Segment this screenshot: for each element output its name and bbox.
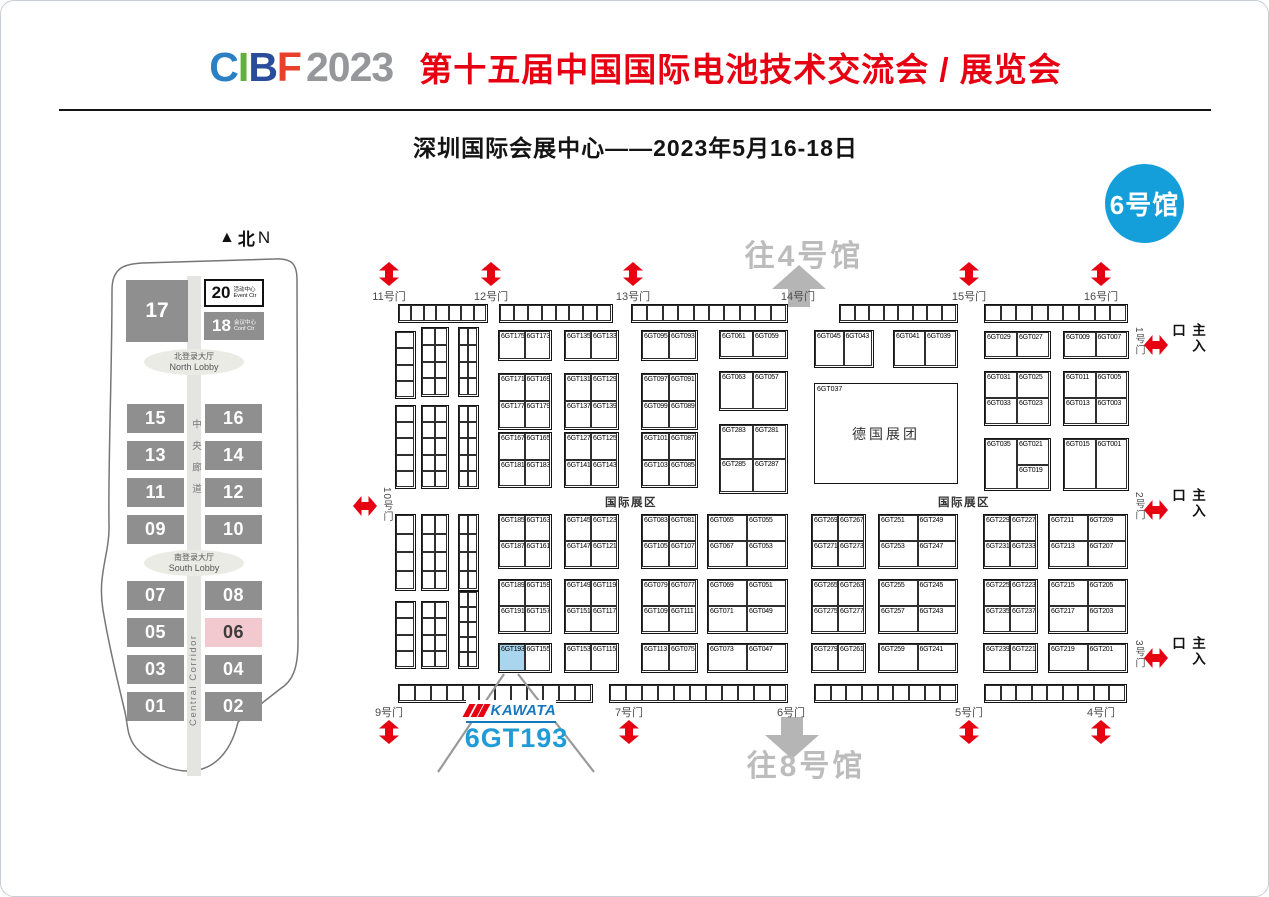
booth-6GT229: 6GT229 [984,515,1010,541]
booth-block: 6GT0356GT0216GT019 [984,438,1051,491]
small-booth-cell [422,471,435,487]
small-booth-cell [724,305,739,321]
booth-block: 6GT0156GT001 [1063,438,1129,491]
booth-block: 6GT0116GT0056GT0136GT003 [1063,371,1129,426]
small-booth-cell [396,348,414,364]
booth-block: 6GT2556GT2456GT2576GT243 [878,579,958,634]
small-booth-cell [435,471,448,487]
minimap-hall-01: 01 [127,692,184,721]
small-booth-cell [1095,305,1111,321]
booth-6GT135: 6GT135 [565,331,591,359]
booth-6GT205: 6GT205 [1088,580,1127,606]
booth-6GT011: 6GT011 [1064,372,1096,398]
small-booth-cell [422,515,435,534]
booth-6GT049: 6GT049 [747,606,786,632]
small-booth-cell [435,515,448,534]
small-booth-cell [1001,305,1017,321]
booth-6GT089: 6GT089 [669,401,696,428]
small-booth-cell [435,635,448,651]
door-label-4号门: 4号门 [1087,704,1115,720]
kawata-logo: KAWATA [466,700,556,723]
small-booth-cell [459,455,468,471]
booth-6GT269: 6GT269 [812,515,838,541]
north-label-cn: 北 [238,225,255,250]
minimap-event-center: 20 活动中心Event Ctr [204,279,264,307]
booth-6GT047: 6GT047 [747,644,786,671]
booth-6GT153: 6GT153 [565,644,591,671]
north-arrow-icon: ▲ [219,229,235,247]
minimap-hall-17: 17 [126,280,188,342]
north-lobby-en: North Lobby [169,362,218,372]
entrance-arrow-icon [1144,500,1168,520]
booth-6GT175: 6GT175 [499,331,525,359]
small-booth-cell [435,422,448,438]
booth-6GT187: 6GT187 [499,541,525,567]
booth-6GT105: 6GT105 [642,541,669,567]
door-arrow-icon [379,720,399,744]
booth-6GT027: 6GT027 [1017,332,1049,357]
small-booth-cell [396,471,414,487]
small-booth-column [458,327,479,397]
small-booth-cell [424,305,436,321]
to-hall8-label: 往8号馆 [747,741,866,785]
small-booth-cell [422,362,435,379]
small-booth-cell [396,534,414,553]
small-booth-cell [468,552,477,571]
booth-6GT159: 6GT159 [525,580,551,606]
small-booth-cell [862,685,878,701]
door-label-10号门: 10号门 [379,487,394,527]
booth-6GT145: 6GT145 [565,515,591,541]
small-booth-cell [528,305,542,321]
international-zone-label: 国际展区 [605,494,657,510]
conference-center-number: 18 [212,316,231,336]
small-booth-cell [674,685,690,701]
door-label-12号门: 12号门 [474,288,508,304]
booth-6GT095: 6GT095 [642,331,669,359]
booth-block: 6GT0976GT0916GT0996GT089 [641,373,698,430]
booth-6GT263: 6GT263 [838,580,864,606]
booth-block: 6GT0836GT0816GT1056GT107 [641,514,698,569]
minimap-hall-05: 05 [127,618,184,647]
door-label-7号门: 7号门 [615,704,643,720]
booth-6GT035: 6GT035 [985,439,1017,489]
small-booth-column [421,601,449,669]
booth-6GT149: 6GT149 [565,580,591,606]
door-arrow-icon [619,720,639,744]
booth-6GT161: 6GT161 [525,541,551,567]
small-booth-cell [556,305,570,321]
small-booth-cell [1063,685,1079,701]
small-booth-cell [738,685,754,701]
small-booth-cell [422,455,435,471]
south-lobby: 南登录大厅 South Lobby [144,550,244,576]
small-booth-cell [846,685,862,701]
small-booth-cell [396,381,414,397]
booth-block: 6GT1316GT1296GT1376GT139 [564,373,619,430]
booth-block: 6GT0416GT039 [893,330,958,368]
booth-6GT179: 6GT179 [525,401,551,428]
booth-block: 6GT1276GT1256GT1416GT143 [564,432,619,488]
door-arrow-icon [623,262,643,286]
small-booth-cell [468,622,477,637]
booth-6GT251: 6GT251 [879,515,918,541]
small-booth-cell [740,305,755,321]
small-booth-cell [468,422,477,438]
small-booth-cell [468,607,477,622]
booth-6GT077: 6GT077 [669,580,696,606]
booth-6GT265: 6GT265 [812,580,838,606]
venue-date-subtitle: 深圳国际会展中心——2023年5月16-18日 [1,129,1269,163]
small-booth-cell [435,651,448,667]
small-booth-cell [459,438,468,454]
booth-6GT029: 6GT029 [985,332,1017,357]
booth-6GT147: 6GT147 [565,541,591,567]
booth-6GT157: 6GT157 [525,606,551,632]
small-booth-cell [642,685,658,701]
logo-letter: I [238,44,248,91]
small-booth-cell [840,305,855,321]
small-booth-cell [468,515,477,534]
hall-6-badge: 6号馆 [1105,164,1184,243]
small-booth-cell [468,406,477,422]
small-booth-strip [984,684,1127,703]
small-booth-column [421,327,449,397]
small-booth-cell [985,685,1001,701]
small-booth-cell [435,602,448,618]
booth-6GT283: 6GT283 [720,425,753,459]
door-arrow-icon [959,262,979,286]
booth-6GT041: 6GT041 [894,331,925,366]
small-booth-cell [468,592,477,607]
booth-6GT117: 6GT117 [591,606,617,632]
minimap-hall-14: 14 [205,441,262,470]
small-booth-cell [940,685,956,701]
small-booth-cell [878,685,894,701]
booth-6GT009: 6GT009 [1064,332,1096,357]
cibf-logo: CIBF2023 [209,44,393,91]
booth-block: 6GT0636GT057 [719,371,788,411]
booth-block: 6GT0296GT027 [984,331,1051,359]
small-booth-cell [678,305,693,321]
booth-6GT255: 6GT255 [879,580,918,606]
small-booth-strip [814,684,958,703]
booth-block: 6GT1356GT133 [564,330,619,361]
booth-block: 6GT2256GT2236GT2356GT237 [983,579,1038,634]
small-booth-cell [898,305,913,321]
booth-6GT021: 6GT021 [1017,439,1049,465]
booth-block: 6GT0696GT0516GT0716GT049 [707,579,788,634]
small-booth-cell [1110,305,1126,321]
small-booth-cell [468,637,477,652]
booth-block: 6GT0656GT0556GT0676GT053 [707,514,788,569]
booth-block: 6GT1016GT0876GT1036GT085 [641,432,698,488]
small-booth-cell [1094,685,1110,701]
small-booth-cell [459,362,468,379]
small-booth-cell [435,362,448,379]
booth-6GT169: 6GT169 [525,374,551,401]
booth-6GT019: 6GT019 [1017,465,1049,489]
booth-6GT111: 6GT111 [669,606,696,632]
booth-6GT083: 6GT083 [642,515,669,541]
logo-letter: F [277,44,301,91]
booth-6GT241: 6GT241 [918,644,957,671]
small-booth-cell [771,305,786,321]
door-label-6号门: 6号门 [777,704,805,720]
small-booth-cell [709,305,724,321]
small-booth-cell [422,406,435,422]
booth-block: 6GT2596GT241 [878,643,958,673]
small-booth-cell [468,571,477,590]
header-divider [59,109,1211,111]
booth-6GT065: 6GT065 [708,515,747,541]
booth-6GT085: 6GT085 [669,460,696,487]
small-booth-cell [1109,685,1125,701]
small-booth-cell [927,305,942,321]
booth-6GT287: 6GT287 [753,459,786,493]
venue-minimap: 17 20 活动中心Event Ctr 18 会议中心Conf Ctr 北登录大… [86,254,306,804]
big-booth-name: 德国展团 [815,384,957,483]
door-label-11号门: 11号门 [372,288,405,304]
small-booth-cell [422,378,435,395]
booth-6GT219: 6GT219 [1049,644,1088,671]
small-booth-cell [694,305,709,321]
small-booth-cell [468,378,477,395]
north-label-en: N [258,228,270,248]
small-booth-cell [1016,305,1032,321]
small-booth-cell [459,592,468,607]
booth-block: 6GT1716GT1696GT1776GT179 [498,373,552,430]
booth-6GT107: 6GT107 [669,541,696,567]
to-hall4-label: 往4号馆 [745,231,864,275]
event-center-number: 20 [212,283,231,303]
header: CIBF2023 第十五届中国国际电池技术交流会 / 展览会 [1,43,1269,91]
booth-block: 6GT0616GT059 [719,330,788,359]
booth-6GT275: 6GT275 [812,606,838,632]
small-booth-cell [435,438,448,454]
small-booth-cell [396,571,414,590]
booth-block: 6GT1136GT075 [641,643,698,673]
door-label-15号门: 15号门 [952,288,986,304]
small-booth-cell [435,552,448,571]
small-booth-cell [435,378,448,395]
small-booth-cell [436,305,448,321]
small-booth-strip [398,304,488,323]
booth-block: 6GT1936GT155 [498,643,552,673]
booth-6GT181: 6GT181 [499,460,525,487]
small-booth-column [395,601,416,669]
small-booth-cell [459,328,468,345]
booth-block: 6GT2516GT2496GT2536GT247 [878,514,958,569]
small-booth-column [395,405,416,489]
small-booth-cell [468,455,477,471]
main-entrance-label: 主入口 [1167,636,1207,682]
small-booth-cell [435,571,448,590]
booth-6GT177: 6GT177 [499,401,525,428]
booth-6GT071: 6GT071 [708,606,747,632]
small-booth-cell [569,305,583,321]
minimap-hall-16: 16 [205,404,262,433]
small-booth-cell [461,305,473,321]
small-booth-cell [909,685,925,701]
booth-6GT191: 6GT191 [499,606,525,632]
small-booth-cell [597,305,611,321]
small-booth-cell [422,328,435,345]
small-booth-cell [632,305,647,321]
event-center-caption: 活动中心Event Ctr [233,287,256,300]
small-booth-cell [459,471,468,487]
small-booth-cell [396,422,414,438]
booth-6GT103: 6GT103 [642,460,669,487]
small-booth-cell [884,305,899,321]
booth-6GT207: 6GT207 [1088,541,1127,567]
booth-6GT237: 6GT237 [1010,606,1036,632]
logo-letter: B [248,44,277,91]
north-indicator: ▲ 北 N [219,225,270,250]
main-entrance-label: 主入口 [1167,323,1207,369]
small-booth-cell [422,552,435,571]
booth-block: 6GT0096GT007 [1063,331,1129,359]
small-booth-cell [583,305,597,321]
booth-6GT045: 6GT045 [815,331,844,366]
booth-6GT123: 6GT123 [591,515,617,541]
small-booth-cell [396,438,414,454]
door-arrow-icon [379,262,399,286]
minimap-conference-center: 18 会议中心Conf Ctr [204,312,264,340]
small-booth-cell [468,534,477,553]
small-booth-strip [499,304,613,323]
small-booth-cell [942,305,957,321]
small-booth-cell [459,652,468,667]
door-arrow-icon [959,720,979,744]
booth-6GT273: 6GT273 [838,541,864,567]
small-booth-column [421,514,449,591]
booth-6GT155: 6GT155 [525,644,551,671]
booth-6GT099: 6GT099 [642,401,669,428]
small-booth-cell [985,305,1001,321]
small-booth-cell [754,685,770,701]
booth-6GT271: 6GT271 [812,541,838,567]
booth-6GT231: 6GT231 [984,541,1010,567]
booth-6GT059: 6GT059 [753,331,786,357]
small-booth-cell [435,534,448,553]
booth-block: 6GT1896GT1596GT1916GT157 [498,579,552,634]
booth-6GT081: 6GT081 [669,515,696,541]
small-booth-strip [984,304,1128,323]
minimap-hall-07: 07 [127,581,184,610]
booth-6GT171: 6GT171 [499,374,525,401]
booth-block: 6GT2696GT2676GT2716GT273 [811,514,866,569]
small-booth-cell [468,345,477,362]
booth-6GT245: 6GT245 [918,580,957,606]
booth-6GT143: 6GT143 [591,460,617,487]
entrance-arrow-icon [1144,648,1168,668]
booth-block: 6GT2116GT2096GT2136GT207 [1048,514,1128,569]
small-booth-cell [1032,685,1048,701]
booth-6GT209: 6GT209 [1088,515,1127,541]
small-booth-cell [422,635,435,651]
south-lobby-en: South Lobby [169,563,220,573]
minimap-hall-13: 13 [127,441,184,470]
booth-6GT185: 6GT185 [499,515,525,541]
booth-block: 6GT2396GT221 [983,643,1038,673]
small-booth-column [458,591,479,669]
small-booth-cell [422,438,435,454]
small-booth-cell [396,455,414,471]
logo-letter: C [209,44,238,91]
booth-block: 6GT0796GT0776GT1096GT111 [641,579,698,634]
booth-6GT239: 6GT239 [984,644,1010,671]
small-booth-cell [399,685,415,701]
small-booth-cell [396,515,414,534]
small-booth-cell [690,685,706,701]
small-booth-cell [396,635,414,651]
booth-6GT037: 6GT037德国展团 [814,383,958,484]
small-booth-cell [468,652,477,667]
small-booth-cell [542,305,556,321]
highlighted-booth-number: 6GT193 [459,723,574,754]
booth-6GT033: 6GT033 [985,398,1017,424]
door-arrow-icon [1091,262,1111,286]
north-lobby: 北登录大厅 North Lobby [144,349,244,375]
booth-6GT261: 6GT261 [838,644,864,671]
booth-6GT285: 6GT285 [720,459,753,493]
booth-6GT001: 6GT001 [1096,439,1128,489]
small-booth-cell [1016,685,1032,701]
small-booth-cell [435,618,448,634]
international-zone-label: 国际展区 [938,494,990,510]
small-booth-cell [658,685,674,701]
booth-6GT007: 6GT007 [1096,332,1128,357]
booth-6GT139: 6GT139 [591,401,617,428]
booth-6GT051: 6GT051 [747,580,786,606]
booth-6GT233: 6GT233 [1010,541,1036,567]
door-label-16号门: 16号门 [1084,288,1118,304]
small-booth-cell [893,685,909,701]
booth-6GT223: 6GT223 [1010,580,1036,606]
small-booth-cell [468,328,477,345]
small-booth-cell [815,685,831,701]
small-booth-cell [396,406,414,422]
minimap-hall-02: 02 [205,692,262,721]
small-booth-cell [396,552,414,571]
booth-6GT093: 6GT093 [669,331,696,359]
booth-block: 6GT1456GT1236GT1476GT121 [564,514,619,569]
booth-6GT039: 6GT039 [925,331,956,366]
booth-6GT277: 6GT277 [838,606,864,632]
booth-6GT279: 6GT279 [812,644,838,671]
booth-block: 6GT0736GT047 [707,643,788,673]
minimap-hall-06: 06 [205,618,262,647]
minimap-hall-15: 15 [127,404,184,433]
door-label-9号门: 9号门 [375,704,403,720]
booth-6GT005: 6GT005 [1096,372,1128,398]
small-booth-cell [468,471,477,487]
small-booth-cell [468,362,477,379]
small-booth-cell [626,685,642,701]
booth-6GT119: 6GT119 [591,580,617,606]
small-booth-cell [770,685,786,701]
small-booth-cell [422,534,435,553]
small-booth-cell [435,455,448,471]
booth-6GT091: 6GT091 [669,374,696,401]
booth-6GT173: 6GT173 [525,331,551,359]
booth-6GT023: 6GT023 [1017,398,1049,424]
booth-6GT013: 6GT013 [1064,398,1096,424]
small-booth-cell [459,571,468,590]
page-title: 第十五届中国国际电池技术交流会 / 展览会 [419,43,1062,91]
booth-6GT097: 6GT097 [642,374,669,401]
